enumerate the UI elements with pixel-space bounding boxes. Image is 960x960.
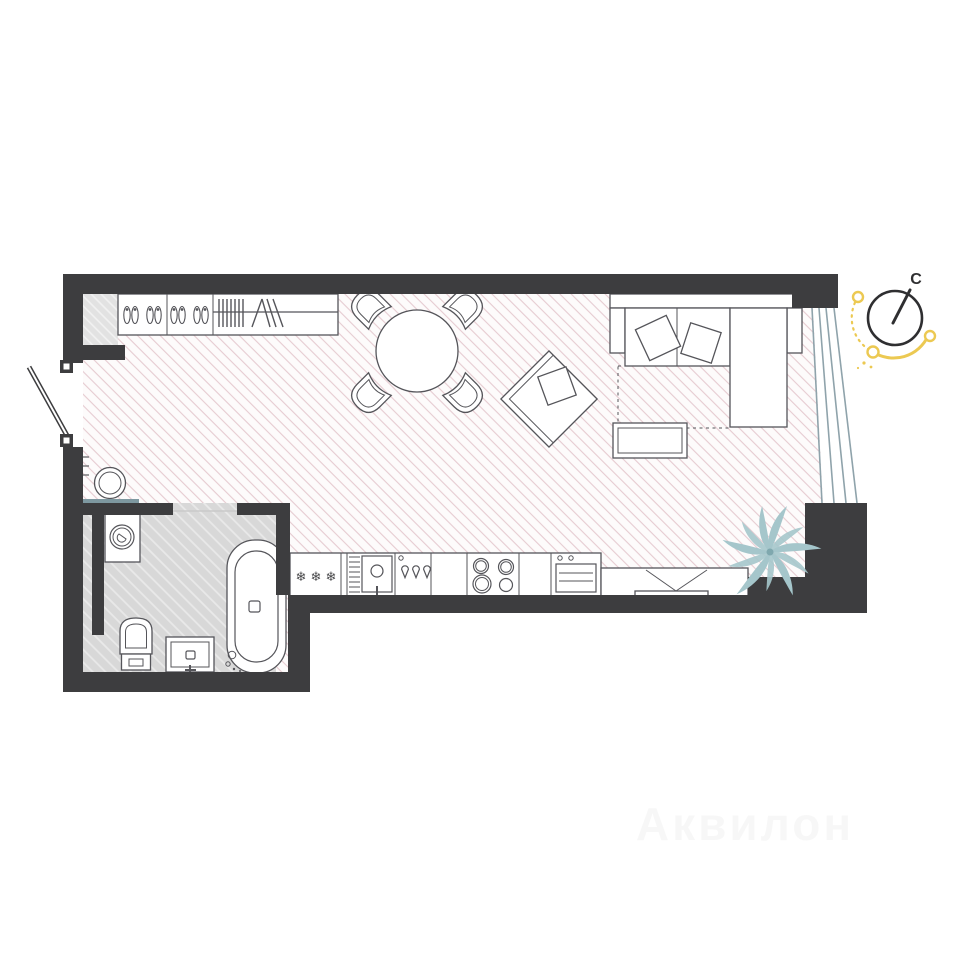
sofa-armrest-left [610,308,625,353]
compass-north-label: C [910,271,922,288]
watermark: Аквилон [636,798,854,850]
kitchen-counter: ❄ ❄ ❄ [290,553,601,597]
snowflake-icon: ❄ [326,569,337,584]
sun-marker-icon [868,347,879,358]
fridge: ❄ ❄ ❄ [296,569,337,584]
wardrobe [118,294,338,335]
floor-plan: ❄ ❄ ❄ [0,0,960,960]
wall-top-right-pier [792,274,838,308]
floor-plan-page: ❄ ❄ ❄ [0,0,960,960]
compass: C [852,271,935,369]
stool [95,468,126,499]
dining-table [376,310,458,392]
washing-machine [105,512,140,562]
tv-console [601,568,748,597]
sofa-chaise [730,308,787,427]
sofa-armrest-right [787,308,802,353]
sun-marker-icon [853,292,863,302]
snowflake-icon: ❄ [296,569,307,584]
wall-bottom-right-pier [805,503,867,613]
coffee-table [613,423,687,458]
bathroom-partition [92,512,104,635]
snowflake-icon: ❄ [311,569,322,584]
entry-door [29,360,73,447]
sun-marker-icon [925,331,935,341]
sofa-back [610,294,802,308]
toilet [120,618,152,670]
vanity-sink [166,637,214,676]
ventilation-shaft [83,294,118,345]
